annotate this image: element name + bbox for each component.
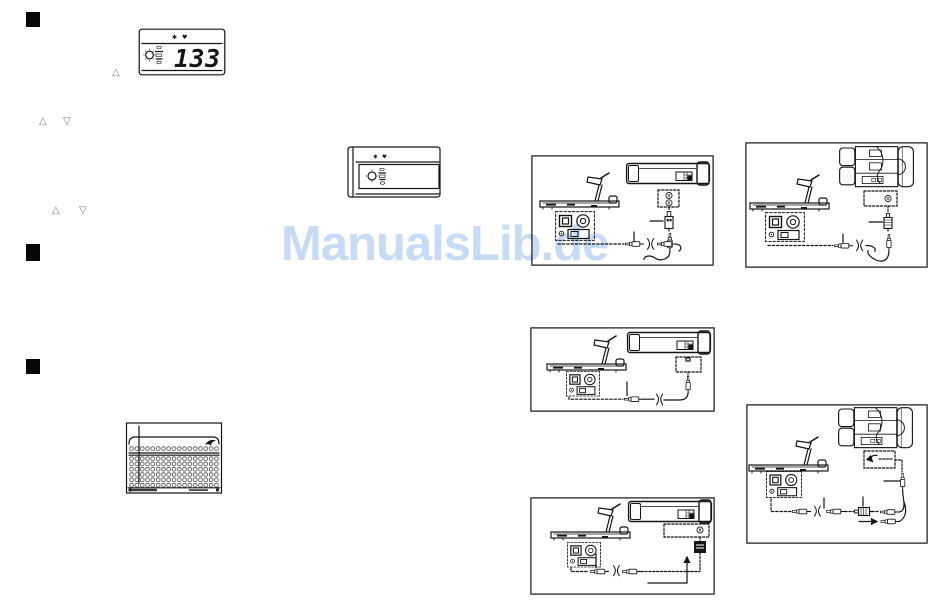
audio-plug — [590, 569, 608, 574]
audio-plug — [880, 510, 898, 515]
audio-plug — [887, 234, 891, 251]
pulse-value: 133 — [174, 44, 221, 73]
speaker-grille-figure — [125, 420, 225, 496]
console-jack-panel-detail — [556, 212, 595, 241]
stereo-figure — [628, 331, 711, 354]
audio-plug — [834, 243, 852, 248]
audio-plug — [624, 397, 642, 402]
stereo-figure — [627, 162, 710, 185]
console-jack-panel-detail — [766, 213, 805, 242]
audio-plug — [625, 242, 643, 247]
cable-break-mark — [814, 506, 820, 516]
audio-plug — [686, 376, 690, 393]
stereo-figure — [629, 500, 712, 523]
brand-text-smudge — [130, 489, 157, 491]
connection-diagram-boombox-y-cable — [746, 404, 928, 544]
speed-icon: ✱ — [373, 154, 378, 161]
section-marker — [26, 359, 40, 374]
model-text-smudge — [189, 489, 208, 491]
stereo-jack-detail — [676, 357, 701, 376]
treadmill-figure — [547, 336, 626, 372]
stereo-jack-detail — [864, 451, 902, 472]
stereo-jack-detail — [864, 191, 897, 213]
increase-arrow-glyph: △ — [112, 68, 120, 78]
stereo-jack-detail — [658, 190, 679, 211]
section-marker — [26, 244, 40, 261]
decrease-arrow-glyph: ▽ — [63, 117, 71, 127]
boombox-figure — [839, 408, 913, 448]
heart-icon: ♥ — [182, 34, 187, 41]
console-pulse-display-figure: ✱ ♥ 133 — [138, 28, 228, 78]
cable-break-mark — [647, 239, 653, 250]
treadmill-figure — [749, 437, 828, 473]
cable-break-mark — [613, 566, 619, 576]
boombox-figure — [840, 147, 914, 187]
cable-break-mark — [856, 240, 862, 251]
audio-plug — [792, 509, 810, 514]
console-jack-panel-detail — [567, 372, 600, 396]
audio-plug — [826, 509, 844, 514]
console-jack-panel-detail — [767, 472, 802, 498]
audio-plug — [657, 242, 675, 247]
section-marker — [26, 12, 40, 27]
treadmill-figure — [540, 173, 619, 209]
grille-holes — [129, 456, 220, 488]
console-blank-display-figure: ✱ ♥ — [346, 145, 442, 199]
plug-adapter — [855, 508, 873, 516]
treadmill-figure — [551, 504, 630, 540]
pulse-mode-icon-cluster — [366, 168, 386, 184]
stereo-adapter-plug — [665, 212, 673, 232]
audio-plug — [622, 569, 640, 574]
jack-adapter-block — [695, 542, 706, 553]
decrease-arrow-glyph: ▽ — [79, 206, 87, 216]
audio-plug — [900, 473, 904, 490]
brand-swoosh-logo — [205, 440, 216, 446]
connection-diagram-boombox-line-in — [745, 142, 928, 268]
increase-arrow-glyph: △ — [52, 206, 60, 216]
audio-plug — [881, 519, 899, 524]
treadmill-figure — [750, 175, 829, 211]
connection-diagram-stereo-adapter — [530, 497, 715, 595]
connection-diagram-stereo-line-in — [531, 155, 714, 266]
stereo-jack-detail — [664, 524, 709, 541]
heart-icon: ♥ — [382, 155, 387, 161]
cable-break-mark — [656, 394, 662, 405]
connection-diagram-stereo-single-cable — [530, 327, 715, 412]
grille-hole-row — [129, 446, 220, 451]
pulse-mode-icon-cluster — [143, 46, 162, 64]
increase-arrow-glyph: △ — [39, 117, 47, 127]
speed-icon: ✱ — [172, 34, 177, 41]
plug-adapter — [884, 214, 892, 232]
